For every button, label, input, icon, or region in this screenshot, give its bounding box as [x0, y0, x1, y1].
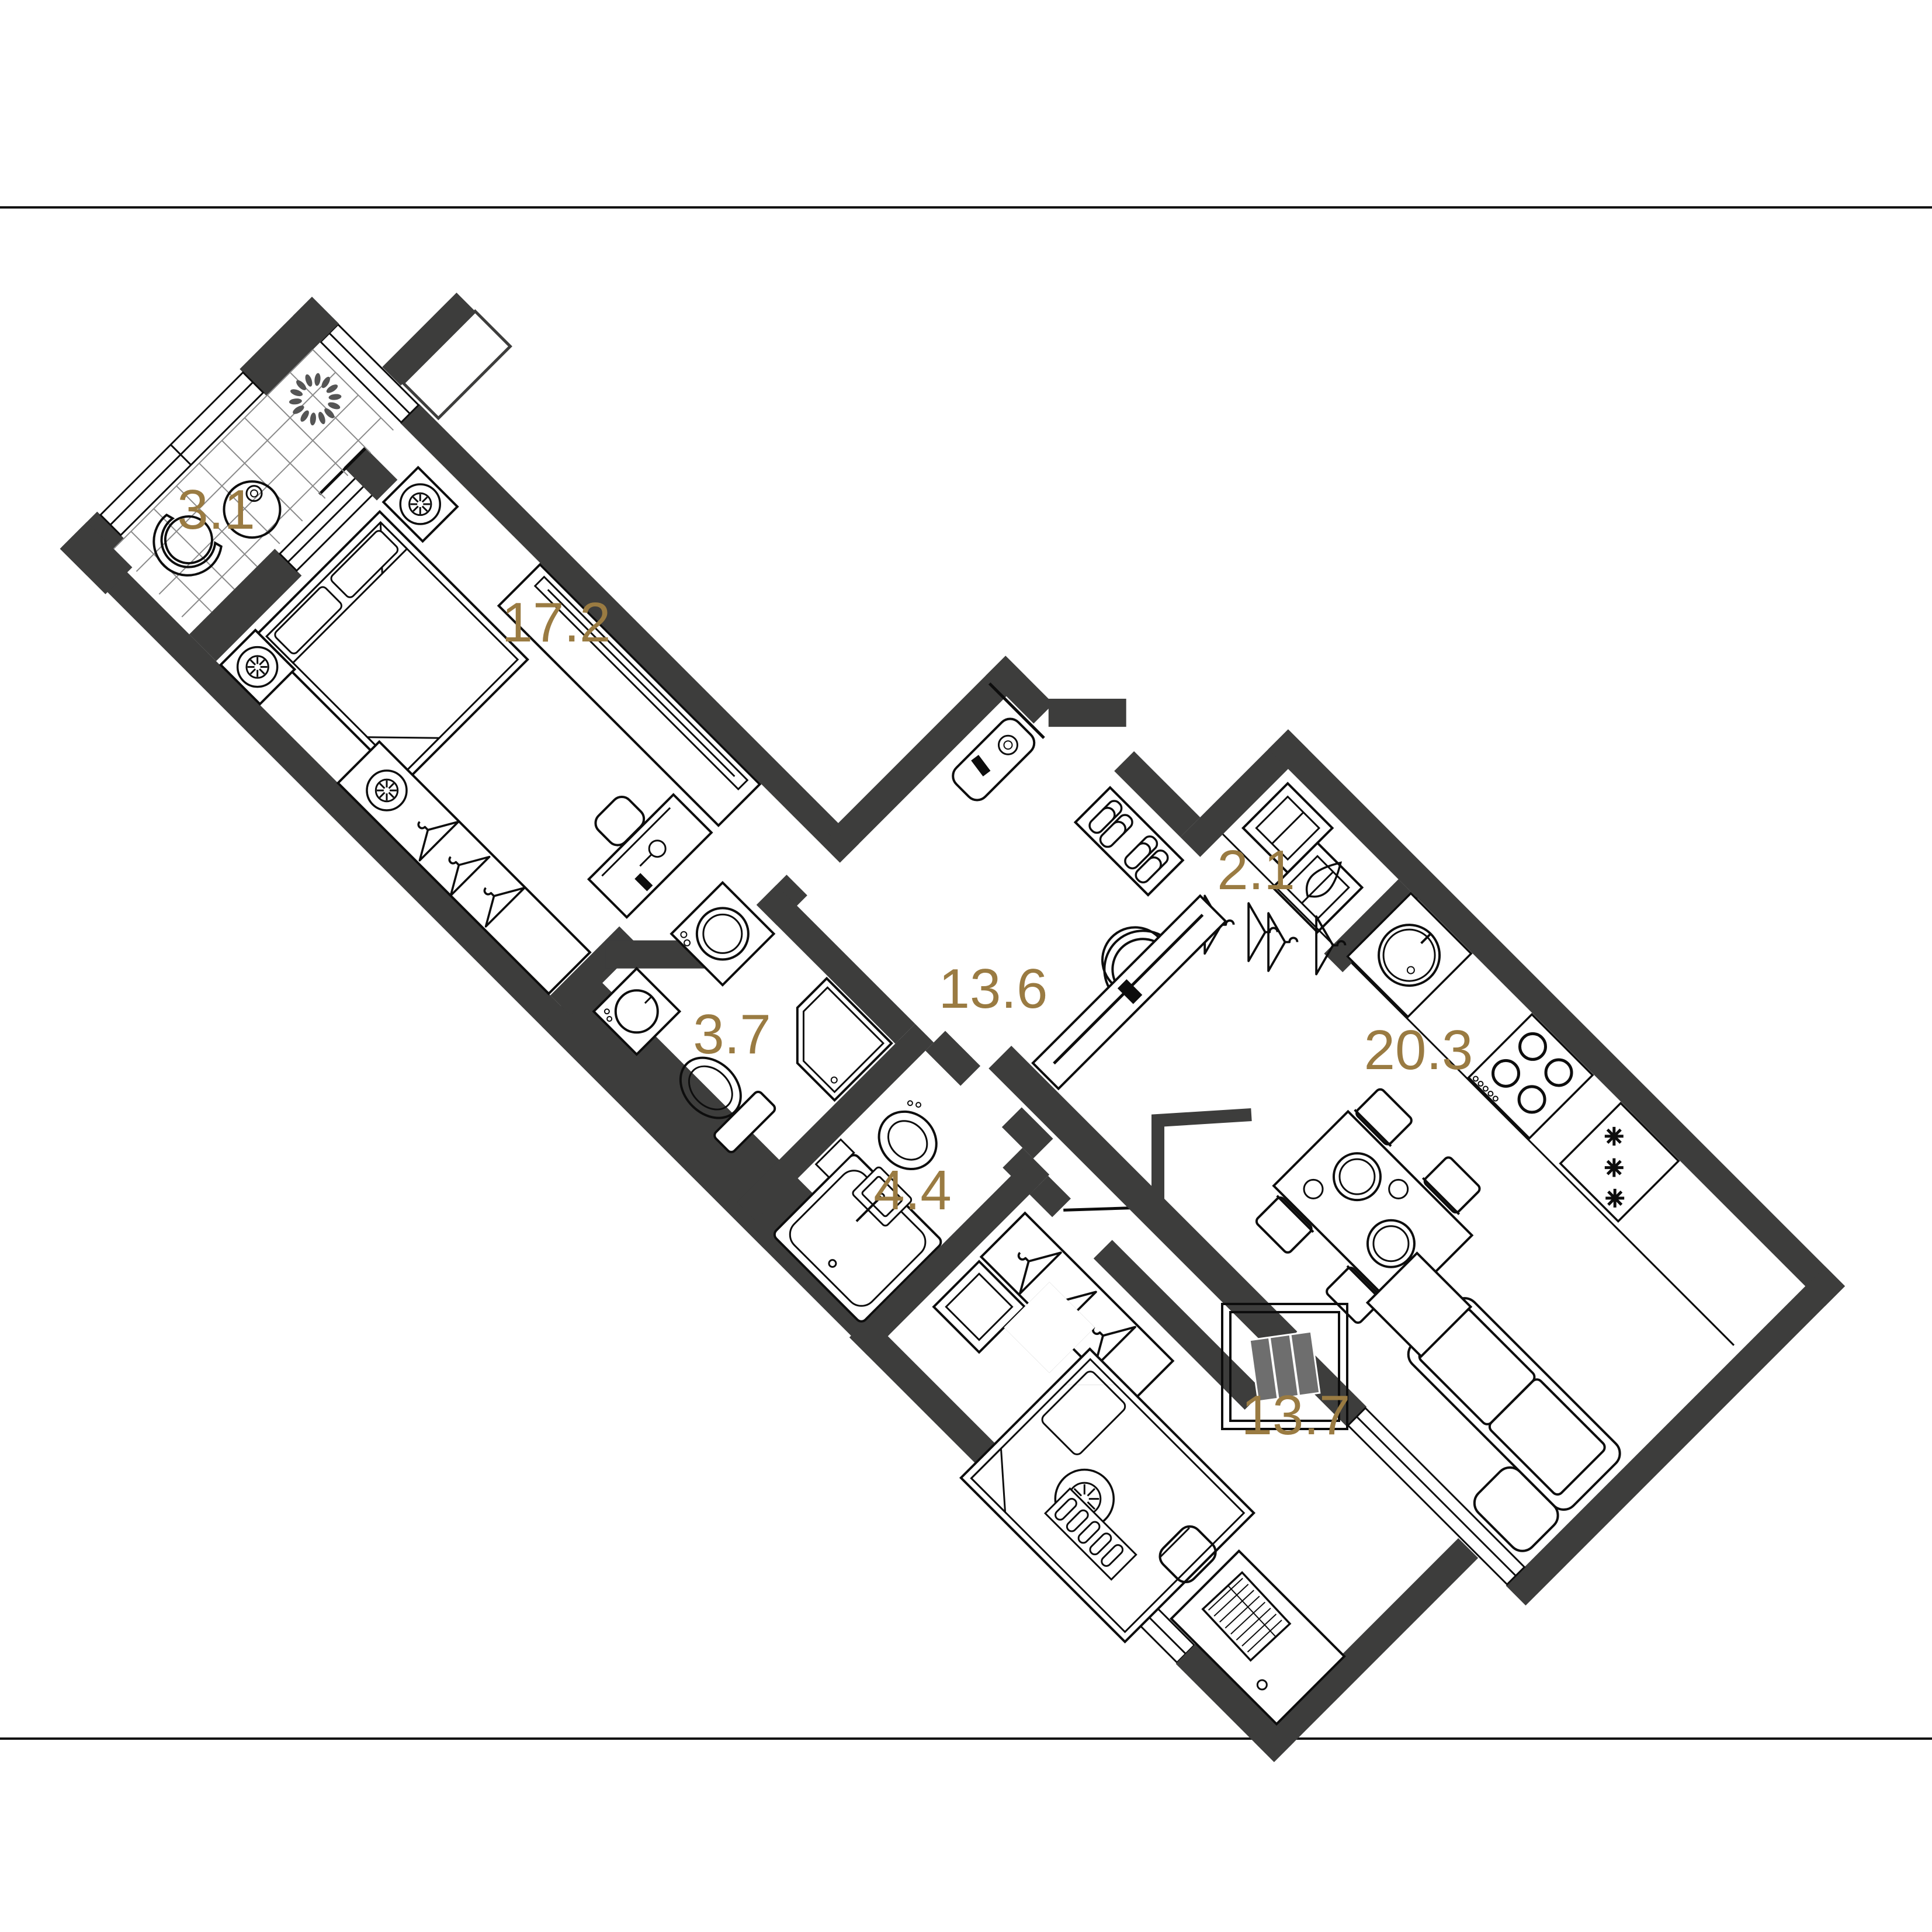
svg-text:2.1: 2.1: [1217, 839, 1295, 901]
svg-text:4.4: 4.4: [873, 1159, 951, 1222]
svg-text:13.7: 13.7: [1241, 1384, 1351, 1447]
svg-text:20.3: 20.3: [1364, 1019, 1473, 1081]
svg-text:13.6: 13.6: [939, 958, 1048, 1020]
svg-text:3.7: 3.7: [693, 1003, 771, 1066]
svg-text:17.2: 17.2: [502, 591, 611, 654]
svg-text:3.1: 3.1: [177, 478, 255, 541]
